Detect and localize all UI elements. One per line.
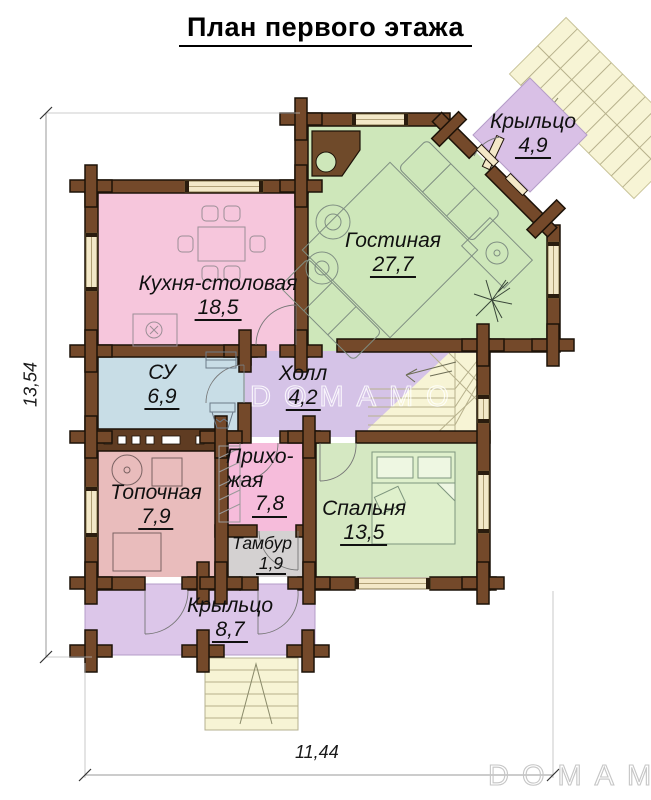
room-label-porch-bottom: Крыльцо 8,7	[187, 594, 273, 643]
room-label-porch-top: Крыльцо 4,9	[490, 110, 576, 159]
floor-plan-page: План первого этажа DOMAMO DOMAMO Кухня-с…	[0, 0, 651, 800]
room-label-wc: СУ 6,9	[144, 361, 179, 410]
room-label-bedroom: Спальня 13,5	[322, 497, 406, 546]
dimension-width: 11,44	[295, 742, 339, 763]
watermark-corner: DOMAMO	[488, 760, 651, 793]
room-label-boiler: Топочная 7,9	[110, 481, 201, 530]
exterior-stair-bottom	[205, 658, 298, 730]
room-label-kitchen: Кухня-столовая 18,5	[139, 272, 298, 321]
room-label-living: Гостиная 27,7	[345, 229, 441, 278]
room-label-vestibule: Тамбур 1,9	[232, 534, 292, 575]
page-title: План первого этажа	[0, 12, 651, 43]
room-label-hall: Холл 4,2	[279, 362, 327, 411]
room-label-entry: Прихо- жая 7,8	[226, 445, 294, 518]
dimension-height: 13,54	[21, 346, 42, 424]
